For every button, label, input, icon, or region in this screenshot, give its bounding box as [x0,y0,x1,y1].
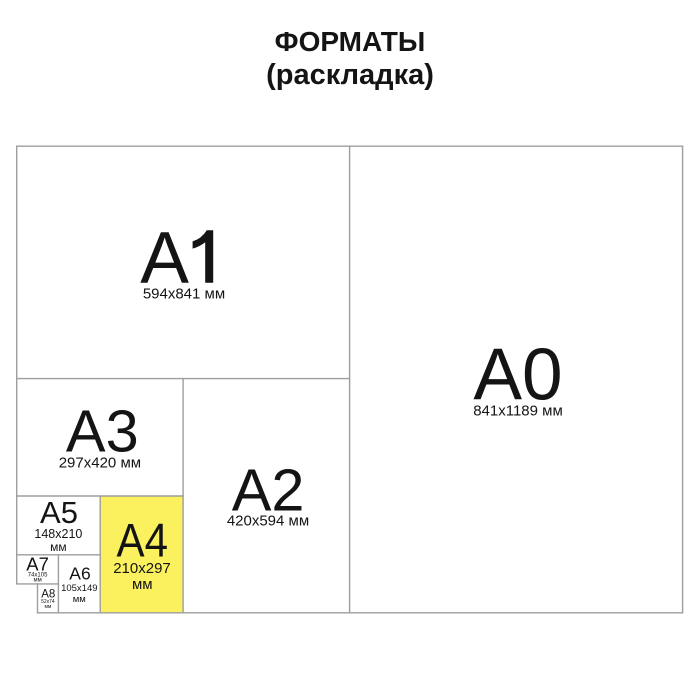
svg-text:мм: мм [44,604,51,610]
svg-text:420х594 мм: 420х594 мм [227,513,309,530]
svg-text:148х210: 148х210 [34,527,82,541]
svg-text:А5: А5 [40,495,78,530]
svg-text:ФОРМАТЫ: ФОРМАТЫ [275,26,426,57]
svg-text:А6: А6 [69,563,90,583]
svg-text:мм: мм [50,540,67,554]
svg-text:297х420 мм: 297х420 мм [59,455,141,472]
svg-text:841х1189 мм: 841х1189 мм [473,402,563,419]
svg-text:мм: мм [132,576,153,593]
svg-text:А4: А4 [117,513,169,566]
svg-text:210х297: 210х297 [113,560,171,577]
svg-text:594х841 мм: 594х841 мм [143,285,225,302]
svg-text:(раскладка): (раскладка) [266,59,434,91]
svg-text:мм: мм [33,578,41,584]
svg-text:105х149: 105х149 [61,583,97,594]
svg-text:мм: мм [73,594,86,605]
